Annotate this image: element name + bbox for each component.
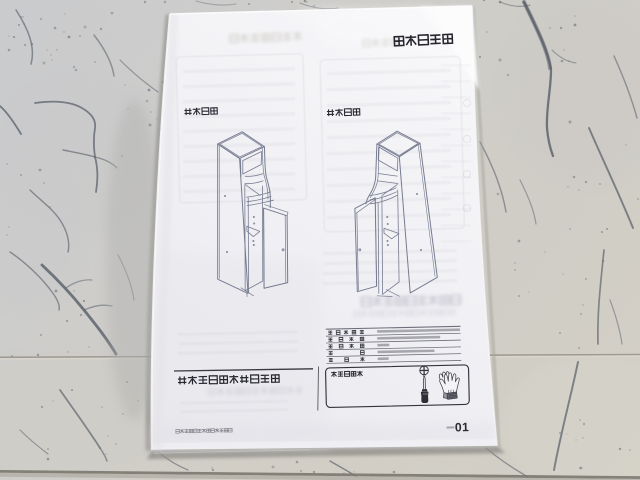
svg-text:01: 01 — [455, 420, 470, 434]
